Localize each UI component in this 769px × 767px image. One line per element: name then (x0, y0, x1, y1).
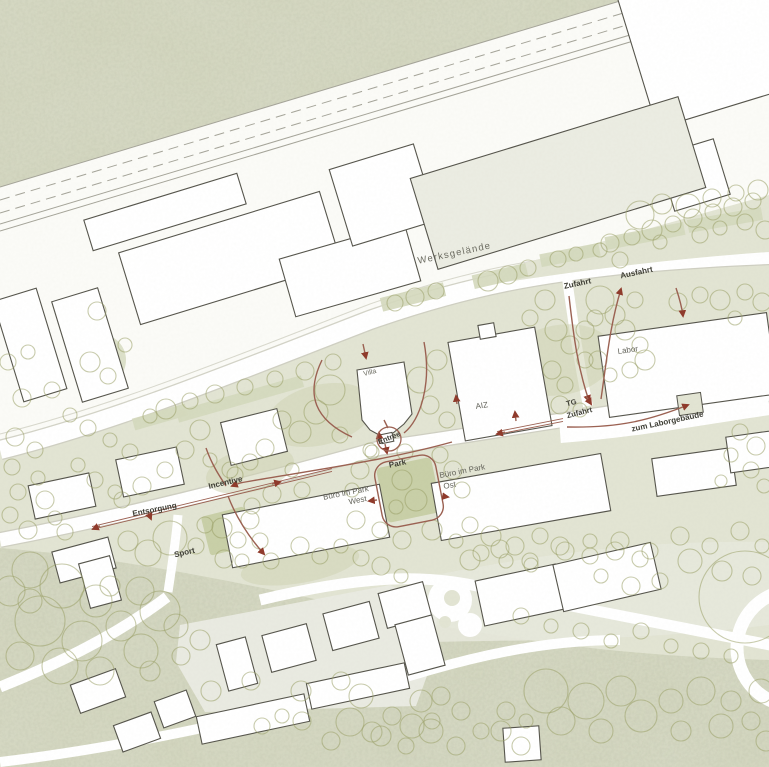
site-plan-map: Werksgelände Zufahrt Ausfahrt Labor Vill… (0, 0, 769, 767)
site-plan-canvas: Werksgelände Zufahrt Ausfahrt Labor Vill… (0, 0, 769, 767)
paper-grain-overlay (0, 0, 769, 767)
